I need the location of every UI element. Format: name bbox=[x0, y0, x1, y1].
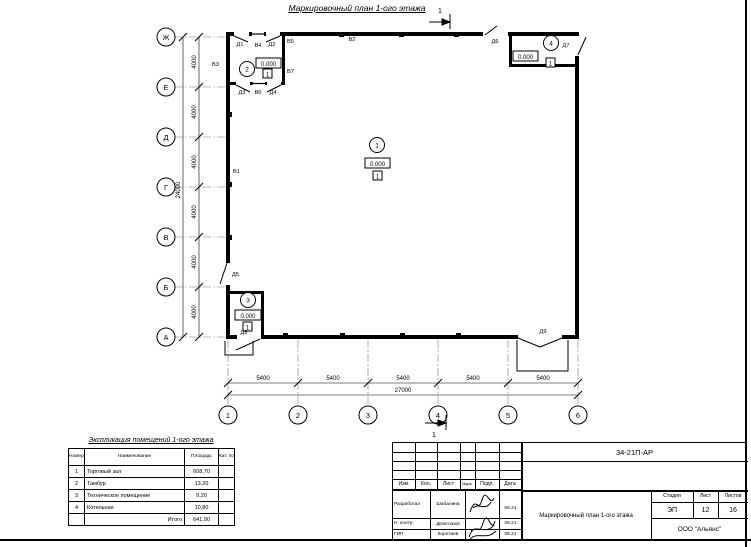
signature-icon bbox=[467, 492, 497, 516]
stamp-col-ndok: №док. bbox=[460, 479, 475, 489]
dim-5400-5: 5400 bbox=[536, 376, 550, 382]
bottom-axis-bubbles bbox=[219, 406, 587, 424]
door-label-d7: Д7 bbox=[563, 43, 570, 49]
door-label-d5: Д5 bbox=[232, 272, 239, 278]
dim-4000-2: 4000 bbox=[192, 105, 198, 119]
explication-title: Экспликация помещений 1-ого этажа bbox=[68, 437, 234, 444]
dim-4000-6: 4000 bbox=[192, 305, 198, 319]
svg-text:0.000: 0.000 bbox=[518, 55, 534, 61]
axis-label-2: 2 bbox=[296, 411, 300, 420]
room-mark-1: 1 0.000 1 bbox=[365, 138, 390, 181]
table-total-row: Итого 641,90 bbox=[69, 514, 235, 526]
section-cut-top-icon bbox=[429, 14, 450, 29]
sheet-frame-bottom bbox=[0, 539, 751, 541]
room-mark-2: 2 0.000 1 bbox=[240, 58, 282, 79]
stamp-name-developer: Шабалина bbox=[431, 491, 465, 517]
axis-label-5: 5 bbox=[506, 411, 510, 420]
dim-4000-1: 4000 bbox=[192, 55, 198, 69]
stamp-col-podp: Подп. bbox=[475, 479, 499, 489]
table-row: 1 Торговый зал 608,70 bbox=[69, 466, 235, 478]
section-cut-top-label: 1 bbox=[438, 8, 442, 15]
dim-4000-5: 4000 bbox=[192, 255, 198, 269]
door-label-d6: Д6 bbox=[492, 39, 499, 45]
axis-label-a: А bbox=[163, 333, 168, 342]
axis-label-g: Г bbox=[164, 183, 168, 192]
dim-24000: 24000 bbox=[176, 181, 182, 198]
door-label-d3: Д3 bbox=[239, 90, 246, 96]
axis-label-d: Д bbox=[163, 133, 168, 142]
stamp-name-ncontrol: Двоеглазов bbox=[431, 518, 465, 529]
stamp-date-developer: 08.21 bbox=[500, 499, 521, 517]
stamp-doc-number: 34-21П-АР bbox=[521, 443, 748, 461]
stamp-col-izm: Изм. bbox=[393, 479, 415, 489]
svg-text:0.000: 0.000 bbox=[240, 314, 256, 320]
explication-table: Номер помещ. Наименование Площадь Кат. п… bbox=[68, 448, 235, 526]
room-mark-3: 3 0.000 1 bbox=[235, 293, 261, 332]
title-block: Изм. Кол. Лист №док. Подп. Дата Разработ… bbox=[392, 442, 747, 540]
col-header-cat: Кат. пом. bbox=[219, 449, 235, 466]
section-cut-bottom-label: 1 bbox=[432, 432, 436, 439]
window-label-v1: В1 bbox=[233, 169, 240, 175]
dim-5400-4: 5400 bbox=[466, 376, 480, 382]
sheet-frame-right bbox=[745, 0, 747, 547]
table-row: 3 Техническое помещение 9,20 bbox=[69, 490, 235, 502]
floor-plan-canvas: Ж Е Д Г В Б А 4000 4000 4000 4000 4000 4… bbox=[0, 0, 751, 445]
room-mark-4: 4 0.000 1 bbox=[513, 36, 559, 68]
axis-label-zh: Ж bbox=[163, 33, 170, 42]
stamp-sheets-value: 16 bbox=[718, 502, 748, 518]
stamp-role-ncontrol: Н. контр. bbox=[394, 518, 430, 529]
col-header-number: Номер помещ. bbox=[69, 449, 85, 466]
dim-4000-3: 4000 bbox=[192, 155, 198, 169]
svg-text:0.000: 0.000 bbox=[370, 162, 386, 168]
axis-label-3: 3 bbox=[366, 411, 370, 420]
window-label-v5: В5 bbox=[287, 39, 294, 45]
axis-label-b: Б bbox=[164, 283, 169, 292]
door-leaves bbox=[220, 26, 586, 350]
axis-label-1: 1 bbox=[226, 411, 230, 420]
dim-5400-3: 5400 bbox=[396, 376, 410, 382]
stamp-sheet-label: Лист bbox=[693, 490, 718, 502]
porches bbox=[225, 340, 568, 371]
stamp-company: ООО "Альянс" bbox=[651, 518, 748, 541]
door-label-d4: Д4 bbox=[270, 90, 277, 96]
table-row: 4 Котельная 10,80 bbox=[69, 502, 235, 514]
door-label-d9: Д9 bbox=[540, 329, 547, 335]
stamp-col-kol: Кол. bbox=[415, 479, 437, 489]
dim-4000-4: 4000 bbox=[192, 205, 198, 219]
svg-text:2: 2 bbox=[245, 67, 249, 74]
left-axis-lines bbox=[175, 37, 226, 337]
col-header-name: Наименование bbox=[85, 449, 185, 466]
svg-text:0.000: 0.000 bbox=[261, 62, 277, 68]
axis-label-4: 4 bbox=[436, 411, 440, 420]
stamp-sheets-label: Листов bbox=[718, 490, 748, 502]
stamp-role-developer: Разработал bbox=[394, 491, 430, 517]
explication-block: Экспликация помещений 1-ого этажа Номер … bbox=[68, 437, 234, 526]
stamp-date-ncontrol: 08.21 bbox=[500, 518, 521, 529]
window-label-v2: В2 bbox=[349, 37, 356, 43]
window-label-v7: В7 bbox=[287, 69, 294, 75]
svg-text:3: 3 bbox=[246, 298, 250, 305]
svg-text:4: 4 bbox=[549, 41, 553, 48]
axis-label-e: Е bbox=[163, 83, 168, 92]
drawing-sheet: Маркировочный план 1-ого этажа bbox=[0, 0, 751, 547]
walls bbox=[226, 32, 579, 339]
axis-label-6: 6 bbox=[576, 411, 580, 420]
door-label-d8: Д8 bbox=[241, 330, 248, 336]
dim-5400-1: 5400 bbox=[256, 376, 270, 382]
signature-icon bbox=[466, 517, 498, 541]
col-header-area: Площадь bbox=[185, 449, 219, 466]
stamp-stage-value: ЭП bbox=[651, 502, 693, 518]
bottom-axis-lines bbox=[228, 340, 578, 406]
door-label-d2: Д2 bbox=[269, 42, 276, 48]
total-label: Итого bbox=[85, 514, 185, 526]
window-label-v6: В6 bbox=[255, 90, 262, 96]
door-label-d1: Д1 bbox=[237, 42, 244, 48]
window-label-v4: В4 bbox=[255, 43, 262, 49]
svg-text:1: 1 bbox=[375, 143, 379, 150]
axis-label-v: В bbox=[163, 233, 168, 242]
dim-5400-2: 5400 bbox=[326, 376, 340, 382]
stamp-sheet-value: 12 bbox=[693, 502, 718, 518]
table-row: 2 Тамбур 13,20 bbox=[69, 478, 235, 490]
dim-27000: 27000 bbox=[395, 388, 412, 394]
stamp-col-data: Дата bbox=[499, 479, 521, 489]
window-label-v3: В3 bbox=[212, 62, 219, 68]
stamp-stage-label: Стадия bbox=[651, 490, 693, 502]
stamp-col-list: Лист bbox=[437, 479, 460, 489]
table-header-row: Номер помещ. Наименование Площадь Кат. п… bbox=[69, 449, 235, 466]
stamp-doc-title: Маркировочный план 1-ого этажа bbox=[521, 491, 651, 541]
total-area: 641,90 bbox=[185, 514, 219, 526]
